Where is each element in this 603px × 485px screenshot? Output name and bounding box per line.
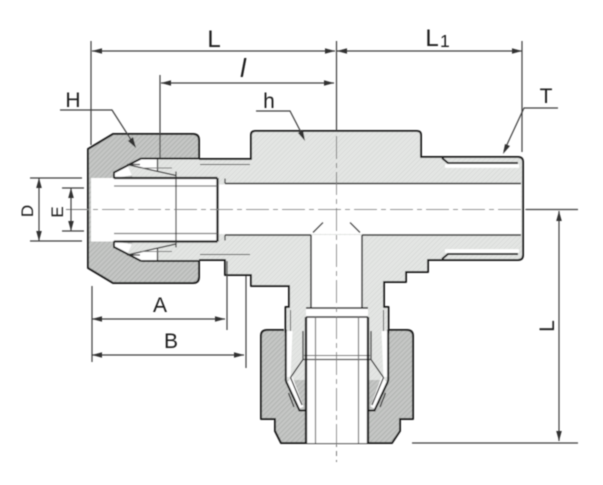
svg-text:L: L bbox=[536, 320, 559, 332]
svg-text:D: D bbox=[18, 205, 37, 217]
svg-text:A: A bbox=[153, 294, 167, 317]
svg-text:T: T bbox=[540, 85, 553, 108]
svg-text:h: h bbox=[263, 90, 275, 113]
svg-text:B: B bbox=[164, 330, 178, 353]
svg-text:E: E bbox=[48, 206, 67, 217]
svg-text:L: L bbox=[207, 26, 220, 53]
svg-text:L: L bbox=[425, 25, 438, 52]
svg-text:1: 1 bbox=[440, 31, 450, 51]
svg-text:H: H bbox=[65, 89, 80, 112]
